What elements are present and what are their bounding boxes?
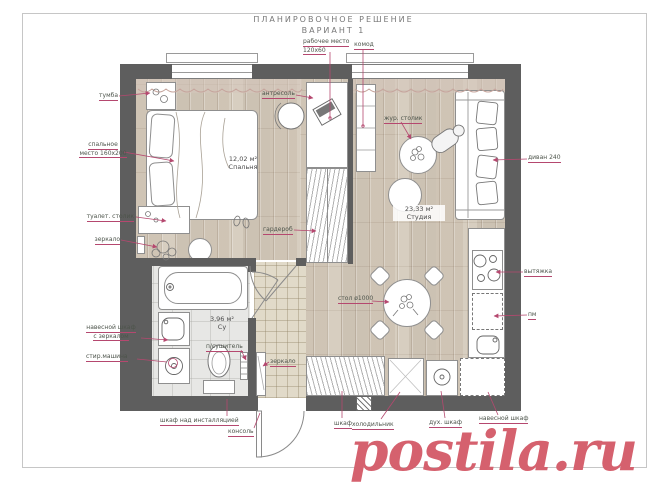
coffee-table [399, 136, 437, 174]
desk-workplace [306, 82, 348, 168]
label-washing-machine: стир.машина [86, 353, 128, 362]
wall-bedroom-south [134, 258, 250, 266]
sofa [455, 90, 505, 220]
bedroom-area-value: 12,02 м² [216, 155, 270, 163]
floor-plan-sheet: ПЛАНИРОВОЧНОЕ РЕШЕНИЕ ВАРИАНТ 1 [0, 0, 660, 485]
studio-area-value: 23,33 м² [393, 205, 445, 213]
vanity-sink [158, 312, 190, 346]
dressing-table [138, 206, 190, 234]
label-sofa: диван 240 [528, 154, 561, 163]
cooktop [472, 250, 503, 290]
bathtub-inner [164, 272, 242, 304]
bedroom-window [172, 64, 252, 79]
wall-bottom [120, 396, 258, 411]
pillow [148, 161, 175, 207]
label-console: консоль [228, 428, 254, 437]
watermark: postila.ru [350, 418, 637, 483]
wall-hatch-section [356, 396, 372, 411]
bedroom-name: Спальня [216, 163, 270, 171]
wall-bottom [306, 396, 521, 411]
nightstand [146, 82, 176, 110]
studio-window [352, 64, 468, 79]
hall-wardrobe [306, 356, 385, 396]
label-wall-cab-mirror: навесной шкафс зеркалом [82, 324, 140, 341]
wall-bathroom-east [248, 258, 256, 272]
wall-bedroom-studio [348, 78, 353, 264]
refrigerator [388, 358, 424, 396]
hall-mirror [256, 352, 266, 396]
bathroom-area-value: 3,96 м² [203, 315, 241, 323]
label-mirror-hall: зеркало [270, 358, 296, 367]
bathroom-name: Су [203, 323, 241, 331]
label-komod: комод [351, 41, 377, 50]
label-hood: вытяжка [524, 268, 552, 277]
wall-bathroom-east [248, 318, 256, 398]
window-sill [166, 53, 258, 63]
label-mirror-bedroom: зеркало [84, 236, 120, 245]
label-dressing-table: туалет. столик [84, 213, 134, 222]
oven [426, 360, 458, 396]
dining-table [383, 279, 431, 327]
label-dining-table: стол ø1000 [338, 295, 373, 304]
bedroom-area-label: 12,02 м² Спальня [216, 155, 270, 171]
label-sleeping-place: спальноеместо 160х200 [74, 141, 132, 158]
bathroom-area-label: 3,96 м² Су [203, 315, 241, 331]
label-dishwasher: пм [528, 311, 536, 320]
komod-chest [356, 84, 376, 172]
dishwasher [472, 293, 503, 330]
wall-top [252, 64, 352, 79]
studio-area-label: 23,33 м² Студия [393, 205, 445, 221]
label-towel-dryer: п/сушитель [206, 343, 243, 352]
label-coffee-table: жур. столик [384, 115, 422, 124]
studio-name: Студия [393, 213, 445, 221]
wall-cabinet [460, 358, 505, 396]
plan-title: ПЛАНИРОВОЧНОЕ РЕШЕНИЕ [22, 15, 645, 24]
window-sill [346, 53, 474, 63]
label-nightstand: тумба [88, 92, 118, 101]
dressing-mirror [137, 236, 145, 254]
toilet-tank [203, 380, 235, 394]
label-antresol: антресоль [262, 90, 295, 99]
wardrobe-garderob [306, 168, 348, 263]
plan-variant: ВАРИАНТ 1 [22, 26, 645, 35]
wall-bedroom-south-stub [296, 258, 306, 266]
wall-right [505, 64, 521, 411]
pillow [148, 113, 175, 159]
towel-dryer [240, 352, 248, 380]
label-cabinet-installation: шкаф над инсталляцией [160, 417, 239, 426]
label-garderob: гардероб [263, 226, 293, 235]
washing-machine [158, 348, 190, 384]
label-workplace: рабочее место120х60 [303, 38, 349, 55]
